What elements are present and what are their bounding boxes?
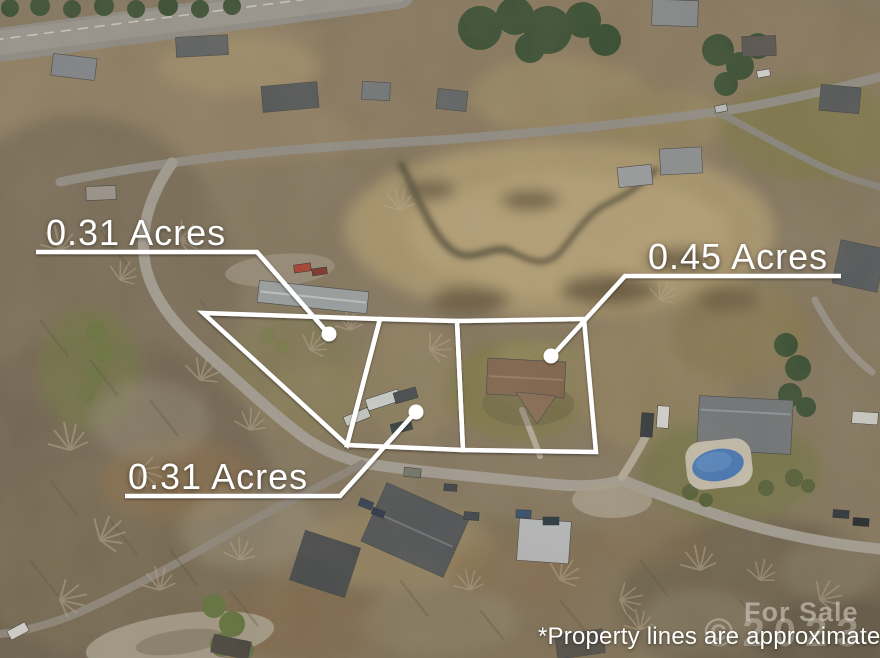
property-lines-disclaimer: *Property lines are approximate [538, 623, 880, 651]
acreage-label-right: 0.45 Acres [648, 236, 828, 278]
acreage-label-top-left: 0.31 Acres [46, 212, 226, 254]
leader-dot [409, 405, 424, 420]
leader-dot [544, 349, 559, 364]
aerial-photo: 0.31 Acres 0.45 Acres 0.31 Acres ©2023 F… [0, 0, 880, 658]
leader-dot [322, 327, 337, 342]
aerial-scene [0, 0, 880, 658]
acreage-label-bottom: 0.31 Acres [128, 456, 308, 498]
photo-grain [0, 0, 880, 658]
